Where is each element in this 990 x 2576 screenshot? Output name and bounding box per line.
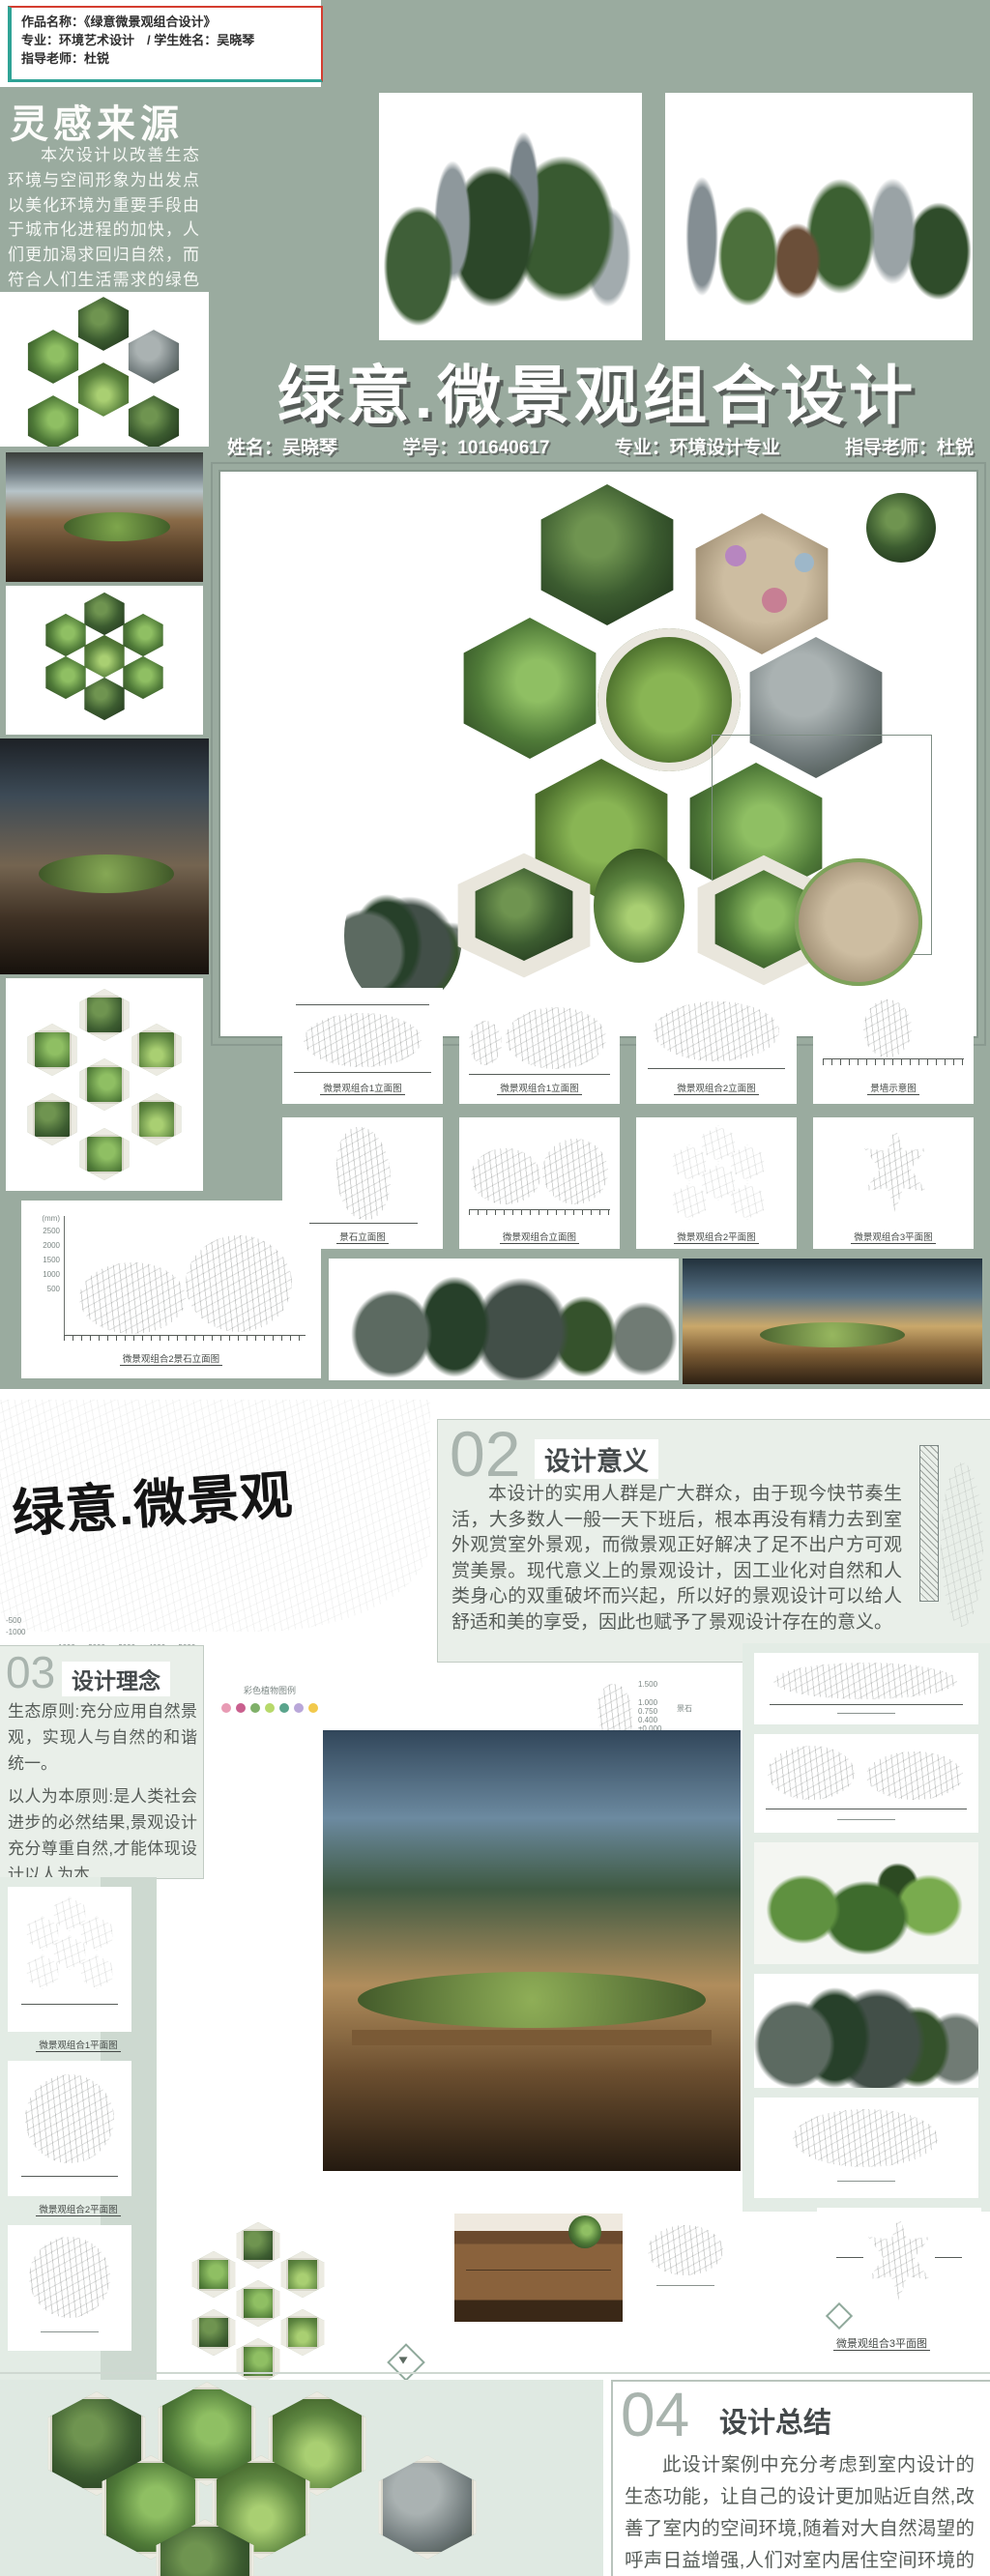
succulent-dot xyxy=(795,553,814,572)
drawing-card: 微景观组合2平面图 xyxy=(636,1117,797,1249)
sketch xyxy=(773,1663,957,1699)
plan3-caption: 微景观组合3平面图 xyxy=(785,2335,978,2351)
sketch-plants xyxy=(79,1262,186,1334)
drawing-card xyxy=(754,1734,978,1833)
drawing-caption: 微景观组合1立面图 xyxy=(459,1081,620,1094)
ground-line xyxy=(469,1073,610,1075)
triangle-icon xyxy=(399,2357,408,2363)
hex-tile xyxy=(25,329,81,385)
hex-tile xyxy=(77,988,131,1042)
photo-plants-rocks xyxy=(754,1974,978,2088)
hex-tile xyxy=(130,1092,184,1146)
photo-interior-window xyxy=(683,1259,982,1384)
legend-dots xyxy=(207,1700,333,1718)
legend-dot xyxy=(294,1703,304,1713)
succulent-dot xyxy=(762,588,787,613)
axis-line xyxy=(64,1216,65,1336)
hex-tile xyxy=(234,2221,282,2270)
poster-page: 作品名称：《绿意微景观组合设计》 专业：环境艺术设计 / 学生姓名：吴晓琴 指导… xyxy=(0,0,990,2576)
hex-tile xyxy=(25,1092,79,1146)
work-title-line: 作品名称：《绿意微景观组合设计》 xyxy=(21,13,311,31)
photo-interior-large xyxy=(323,1730,741,2171)
drawing-caption: 微景观组合2平面图 xyxy=(636,1230,797,1243)
caption-text: 景墙示意图 xyxy=(867,1084,919,1095)
caption-text: 微景观组合立面图 xyxy=(500,1232,579,1244)
drawing-card: 微景观组合1立面图 xyxy=(459,988,620,1104)
caption-line xyxy=(837,2181,895,2182)
stone-label: 景石 xyxy=(677,1703,692,1714)
section-03-text1: 生态原则:充分应用自然景观，实现人与自然的和谐统一。 xyxy=(8,1698,197,1777)
plan-card xyxy=(8,1887,131,2032)
photo-rock-plants-left xyxy=(379,93,642,340)
hex-tile xyxy=(130,1023,184,1077)
hex-tile xyxy=(234,2279,282,2328)
info-major: 专业：环境设计专业 xyxy=(615,433,780,459)
caption-text: 微景观组合2立面图 xyxy=(674,1084,758,1095)
section-03-title: 设计理念 xyxy=(62,1662,170,1696)
hex-tile xyxy=(278,2250,327,2299)
sketch xyxy=(768,1746,855,1800)
table-edge xyxy=(352,2030,712,2045)
hex-tile xyxy=(82,592,127,636)
dim-line xyxy=(836,2256,863,2258)
photo-hex-star-green xyxy=(6,586,203,735)
ground-line xyxy=(770,1703,963,1705)
caption-line xyxy=(41,2331,99,2332)
legend-dot xyxy=(236,1703,246,1713)
scale-label: 1000 xyxy=(27,1270,60,1279)
photo-rock-plants-right xyxy=(665,93,973,340)
hex-tile xyxy=(82,634,127,679)
moss-table xyxy=(64,512,170,541)
photo-interior-cafe xyxy=(6,452,203,582)
hex-tile xyxy=(278,2308,327,2357)
moss-table xyxy=(39,854,174,893)
header-box: 作品名称：《绿意微景观组合设计》 专业：环境艺术设计 / 学生姓名：吴晓琴 指导… xyxy=(8,6,323,82)
plan2-caption: 微景观组合2平面图 xyxy=(0,2202,157,2215)
drawing-caption: 微景观组合2立面图 xyxy=(636,1081,797,1094)
drawing-card xyxy=(754,1653,978,1724)
hex-tile xyxy=(77,1127,131,1181)
drawing-caption: 景石立面图 xyxy=(282,1230,443,1243)
detail-callout-circle xyxy=(866,493,936,563)
photo-interior-dark xyxy=(0,738,209,974)
moss-table xyxy=(760,1322,905,1347)
hex-tile xyxy=(534,481,681,628)
drawing-caption: 景墙示意图 xyxy=(813,1081,974,1094)
ground-ticks xyxy=(64,1336,306,1341)
scale-label: 500 xyxy=(27,1285,60,1293)
ground-line xyxy=(294,1071,431,1073)
hex-tile xyxy=(44,613,88,657)
right-drawing-band xyxy=(742,1643,990,2212)
drawing-card: 微景观组合1立面图 xyxy=(282,988,443,1104)
hex-tile xyxy=(75,296,131,352)
hex-collage-panel xyxy=(218,470,978,1038)
section-02-panel: 02 设计意义 本设计的实用人群是广大群众，由于现今快节奏生活，大多数人一般一天… xyxy=(437,1419,990,1663)
hex-tile xyxy=(44,655,88,700)
detail-callout-circle-right xyxy=(795,858,922,986)
caption-text: 微景观组合1平面图 xyxy=(36,2041,120,2052)
dim-line xyxy=(21,2003,118,2005)
inspiration-title: 灵感来源 xyxy=(10,93,184,149)
drawing-card: 微景观组合3平面图 xyxy=(813,1117,974,1249)
succulent-dot xyxy=(725,545,746,566)
scale-label: (mm) xyxy=(27,1214,60,1223)
info-advisor: 指导老师：杜锐 xyxy=(845,433,974,459)
main-title: 绿意.微景观组合设计 xyxy=(213,344,982,437)
sketch xyxy=(471,1148,540,1204)
rockery-sketch xyxy=(941,1462,983,1627)
dim-line xyxy=(296,1003,429,1005)
caption-line xyxy=(656,2285,714,2286)
hex-tile xyxy=(456,615,603,762)
drawing-card: 景墙示意图 xyxy=(813,988,974,1104)
section-02-number: 02 xyxy=(450,1422,520,1486)
scale-label: 2000 xyxy=(27,1241,60,1250)
photo-plants-green xyxy=(754,1842,978,1964)
rockery-wall-sketch xyxy=(919,1445,939,1602)
section-04-panel: 04 设计总结 此设计案例中充分考虑到室内设计的生态功能，让自己的设计更加贴近自… xyxy=(611,2380,990,2576)
drawing-card: 微景观组合2立面图 xyxy=(636,988,797,1104)
section-02-text: 本设计的实用人群是广大群众，由于现今快节奏生活，大多数人一般一天下班后，根本再没… xyxy=(451,1482,902,1635)
legend-dot xyxy=(250,1703,260,1713)
sketch-tree xyxy=(186,1235,292,1332)
axis-label: -1000 xyxy=(6,1628,25,1636)
legend-dot xyxy=(308,1703,318,1713)
hex-tile xyxy=(189,2250,238,2299)
dim-line xyxy=(21,2175,118,2177)
caption-text: 微景观组合2平面图 xyxy=(36,2205,120,2216)
moss-table xyxy=(358,1972,706,2028)
photo-hex-cluster-topview xyxy=(0,292,209,447)
drawing-caption: 微景观组合3平面图 xyxy=(813,1230,974,1243)
caption-text: 微景观组合2景石立面图 xyxy=(120,1354,222,1366)
caption-text: 微景观组合1立面图 xyxy=(320,1084,404,1095)
sketch-plan xyxy=(25,2074,114,2163)
sketch xyxy=(542,1139,608,1204)
ground-line xyxy=(309,1222,418,1224)
divider-line xyxy=(0,2372,990,2374)
plan1-caption: 微景观组合1平面图 xyxy=(0,2038,157,2051)
info-student-id: 学号：101640617 xyxy=(402,433,549,459)
elevation-caption: 微景观组合2景石立面图 xyxy=(21,1351,321,1365)
sketch xyxy=(506,1007,606,1069)
section-03-number: 03 xyxy=(6,1650,55,1694)
sketch xyxy=(304,1013,422,1067)
hex-tile xyxy=(121,655,165,700)
hex-tile xyxy=(373,2453,481,2562)
advisor-line: 指导老师：杜锐 xyxy=(21,49,311,68)
plan-star xyxy=(863,2215,935,2301)
sketch-plan xyxy=(29,2237,110,2318)
drawing-caption: 微景观组合立面图 xyxy=(459,1230,620,1243)
legend-dot xyxy=(221,1703,231,1713)
plan-star xyxy=(859,1127,931,1212)
caption-text: 景石立面图 xyxy=(336,1232,389,1244)
section-04-number: 04 xyxy=(621,2384,689,2446)
legend-dot xyxy=(265,1703,275,1713)
section-02-title: 设计意义 xyxy=(535,1439,658,1479)
drawing-card xyxy=(754,2098,978,2198)
section-04-title: 设计总结 xyxy=(710,2399,841,2442)
sketch xyxy=(469,1021,502,1065)
ground-line xyxy=(823,1057,964,1059)
info-row: 姓名：吴晓琴 学号：101640617 专业：环境设计专业 指导老师：杜锐 xyxy=(227,433,974,459)
hex-tile xyxy=(25,394,81,447)
ground-ticks xyxy=(823,1059,964,1065)
sketch-rock xyxy=(336,1127,391,1220)
caption-text: 微景观组合2平面图 xyxy=(674,1232,758,1244)
axis-label: -500 xyxy=(6,1616,21,1625)
hex-tile xyxy=(189,2308,238,2357)
sketch xyxy=(863,999,912,1057)
photo-rock-arrangement xyxy=(329,1259,679,1380)
bottom-left-band xyxy=(0,2380,603,2576)
ground-line xyxy=(648,1067,785,1069)
caption-text: 微景观组合3平面图 xyxy=(851,1232,935,1244)
left-plan-band: 微景观组合1平面图 微景观组合2平面图 xyxy=(0,1877,157,2382)
dim-line xyxy=(935,2256,962,2258)
legend-dot xyxy=(279,1703,289,1713)
elevation-scale: (mm) 2500 2000 1500 1000 500 xyxy=(27,1214,60,1293)
caption-line xyxy=(837,1819,895,1820)
scale-label: 2500 xyxy=(27,1227,60,1235)
plan-card xyxy=(8,2061,131,2196)
ground-ticks xyxy=(469,1210,610,1215)
info-name: 姓名：吴晓琴 xyxy=(227,433,337,459)
sketch xyxy=(648,2225,723,2275)
hex-tile xyxy=(126,394,182,447)
plan-card xyxy=(8,2225,131,2351)
photo-hex-star-small xyxy=(160,2215,356,2382)
ground-line xyxy=(766,1808,967,1809)
hex-tile xyxy=(126,329,182,385)
drawing-card xyxy=(630,2214,741,2302)
photo-wood-cabinet xyxy=(454,2214,623,2322)
detail-callout-oval-center xyxy=(594,849,684,963)
sketch xyxy=(654,1001,779,1061)
scale-label: 1500 xyxy=(27,1256,60,1264)
caption-text: 微景观组合1立面图 xyxy=(497,1084,581,1095)
hex-tile xyxy=(234,2337,282,2382)
photo-hex-star-modules xyxy=(6,978,203,1191)
sketch xyxy=(866,1751,963,1800)
major-student-line: 专业：环境艺术设计 / 学生姓名：吴晓琴 xyxy=(21,31,311,49)
plant-pot xyxy=(568,2215,601,2248)
section-03-panel: 03 设计理念 生态原则:充分应用自然景观，实现人与自然的和谐统一。 以人为本原… xyxy=(0,1645,204,1879)
hex-tile xyxy=(75,362,131,418)
level-label: 1.500 xyxy=(638,1680,692,1689)
caption-text: 微景观组合3平面图 xyxy=(833,2338,930,2351)
hex-tile-gravel xyxy=(688,510,835,657)
legend-caption: 彩色植物图例 xyxy=(207,1684,333,1696)
hex-tile xyxy=(82,677,127,721)
hex-tile xyxy=(77,1057,131,1112)
hex-tile xyxy=(121,613,165,657)
drawing-caption: 微景观组合1立面图 xyxy=(282,1081,443,1094)
elevation-drawing-card: (mm) 2500 2000 1500 1000 500 微景观组合2景石立面图 xyxy=(21,1201,321,1378)
sketch xyxy=(793,2109,938,2167)
drawing-card: 景石立面图 xyxy=(282,1117,443,1249)
plant-legend: 彩色植物图例 xyxy=(207,1684,333,1718)
level-label: 0.400 xyxy=(638,1716,692,1724)
caption-line xyxy=(837,1713,895,1714)
section-03-text2: 以人为本原则:是人类社会进步的必然结果,景观设计充分尊重自然,才能体现设计以人为… xyxy=(8,1783,197,1888)
drawing-card: 微景观组合立面图 xyxy=(459,1117,620,1249)
drawer-line xyxy=(466,2270,611,2271)
hex-tile xyxy=(25,1023,79,1077)
section-04-text: 此设计案例中充分考虑到室内设计的生态功能，让自己的设计更加贴近自然,改善了室内的… xyxy=(625,2449,975,2576)
